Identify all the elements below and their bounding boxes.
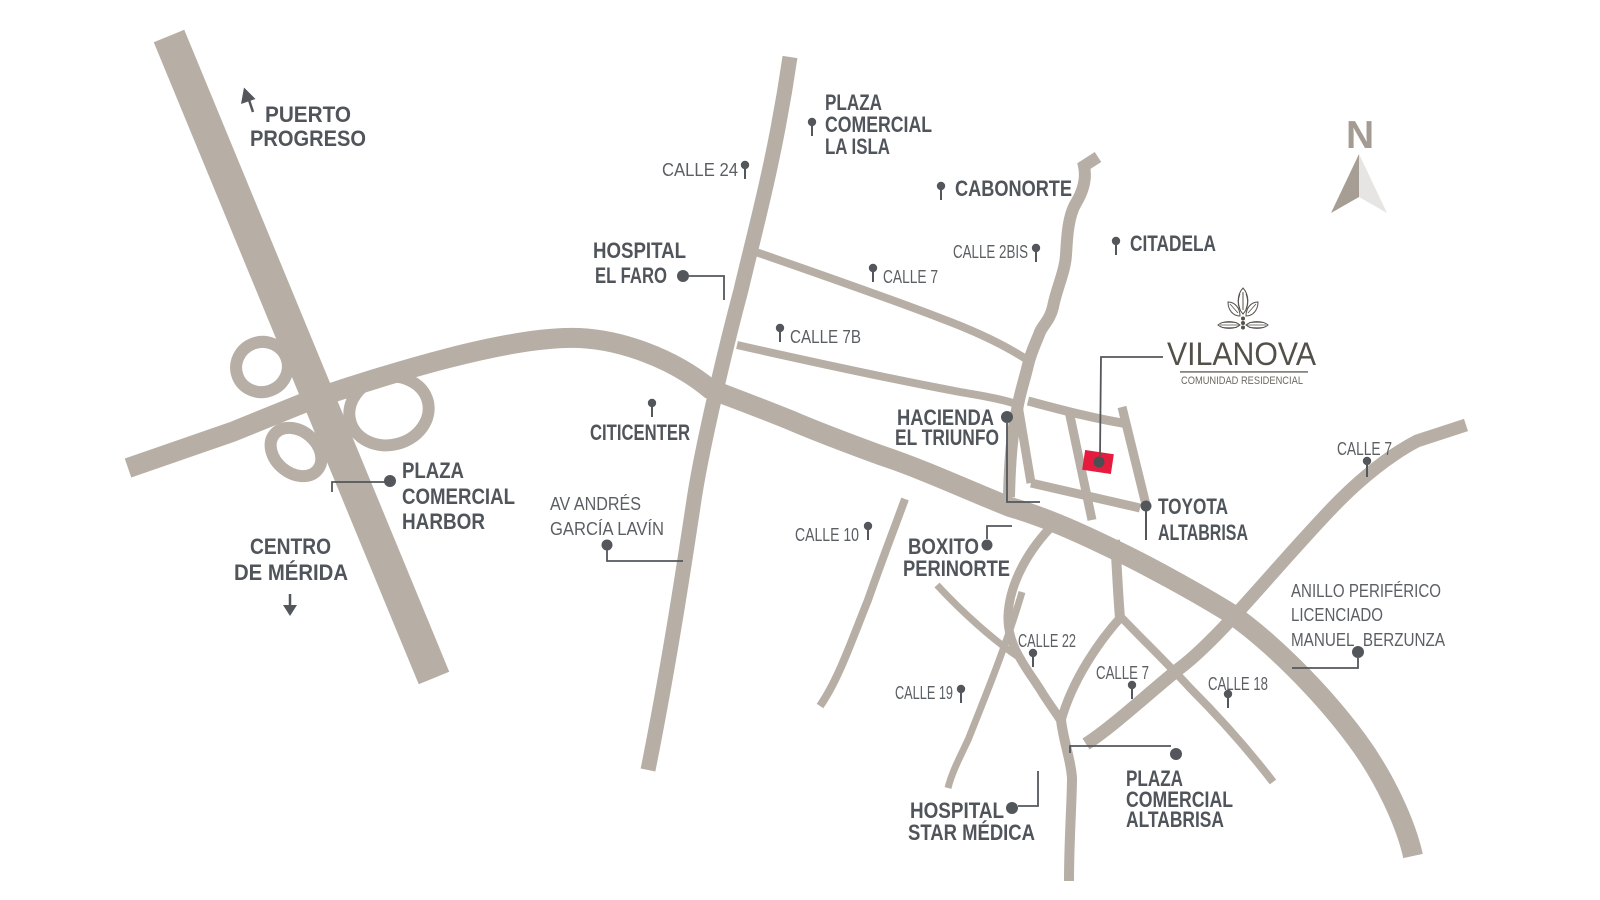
svg-text:CALLE 7: CALLE 7 [1096,663,1149,683]
svg-text:CITICENTER: CITICENTER [590,420,690,445]
svg-text:CITADELA: CITADELA [1130,231,1216,256]
svg-text:PROGRESO: PROGRESO [250,126,366,151]
svg-text:CALLE 24: CALLE 24 [662,160,738,180]
svg-text:CALLE 2BIS: CALLE 2BIS [953,242,1028,262]
svg-text:CABONORTE: CABONORTE [955,176,1072,201]
svg-text:HARBOR: HARBOR [402,509,485,534]
svg-text:LA ISLA: LA ISLA [825,134,890,159]
svg-text:DE MÉRIDA: DE MÉRIDA [234,560,348,585]
svg-text:PERINORTE: PERINORTE [903,556,1010,581]
svg-text:MANUEL BERZUNZA: MANUEL BERZUNZA [1291,630,1445,650]
svg-text:CALLE 7B: CALLE 7B [790,327,861,347]
svg-text:ANILLO PERIFÉRICO: ANILLO PERIFÉRICO [1291,581,1441,601]
svg-text:EL FARO: EL FARO [595,263,667,288]
svg-text:CALLE 7: CALLE 7 [1337,439,1392,459]
svg-text:STAR MÉDICA: STAR MÉDICA [908,820,1035,845]
svg-text:ALTABRISA: ALTABRISA [1158,520,1248,545]
svg-text:VILANOVA: VILANOVA [1167,336,1317,372]
svg-text:CALLE 10: CALLE 10 [795,525,859,545]
svg-text:CALLE 18: CALLE 18 [1208,674,1268,694]
svg-text:AV ANDRÉS: AV ANDRÉS [550,494,641,514]
svg-text:GARCÍA LAVÍN: GARCÍA LAVÍN [550,519,664,539]
svg-text:CALLE 19: CALLE 19 [895,683,953,703]
svg-text:CENTRO: CENTRO [250,534,331,559]
svg-text:CALLE 22: CALLE 22 [1018,631,1076,651]
svg-text:COMERCIAL: COMERCIAL [402,484,515,509]
svg-text:PUERTO: PUERTO [265,102,351,127]
svg-text:COMUNIDAD RESIDENCIAL: COMUNIDAD RESIDENCIAL [1181,375,1303,387]
svg-text:ALTABRISA: ALTABRISA [1126,807,1224,832]
svg-text:CALLE 7: CALLE 7 [883,267,938,287]
svg-text:PLAZA: PLAZA [402,458,464,483]
svg-text:N: N [1346,114,1374,157]
svg-text:TOYOTA: TOYOTA [1158,494,1228,519]
svg-text:EL TRIUNFO: EL TRIUNFO [895,425,999,450]
svg-text:LICENCIADO: LICENCIADO [1291,605,1383,625]
svg-text:HOSPITAL: HOSPITAL [593,238,686,263]
